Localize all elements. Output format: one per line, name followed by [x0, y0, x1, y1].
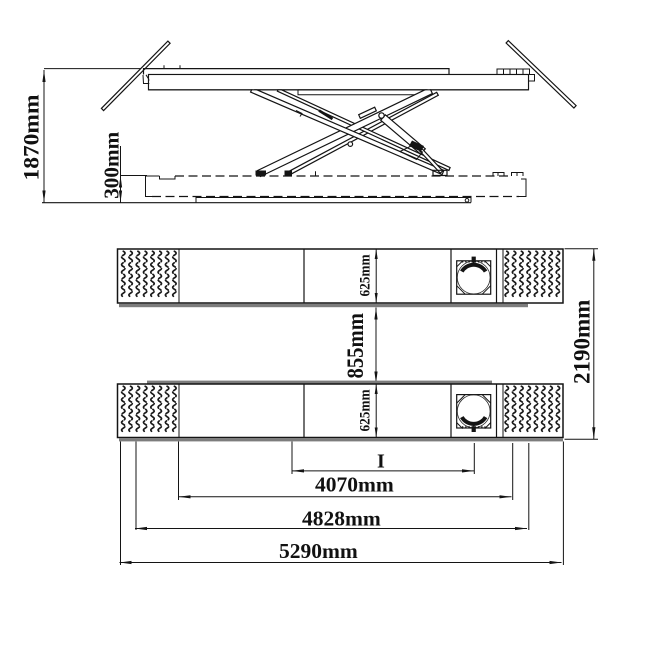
svg-text:300mm: 300mm — [100, 132, 124, 199]
svg-text:625mm: 625mm — [358, 389, 374, 431]
svg-text:5290mm: 5290mm — [279, 539, 358, 563]
svg-text:2190mm: 2190mm — [570, 300, 595, 384]
svg-text:4070mm: 4070mm — [315, 473, 394, 497]
svg-text:1870mm: 1870mm — [19, 95, 44, 181]
svg-text:625mm: 625mm — [358, 254, 374, 296]
svg-text:I: I — [377, 451, 385, 473]
svg-text:4828mm: 4828mm — [302, 507, 381, 531]
svg-text:855mm: 855mm — [343, 313, 368, 379]
